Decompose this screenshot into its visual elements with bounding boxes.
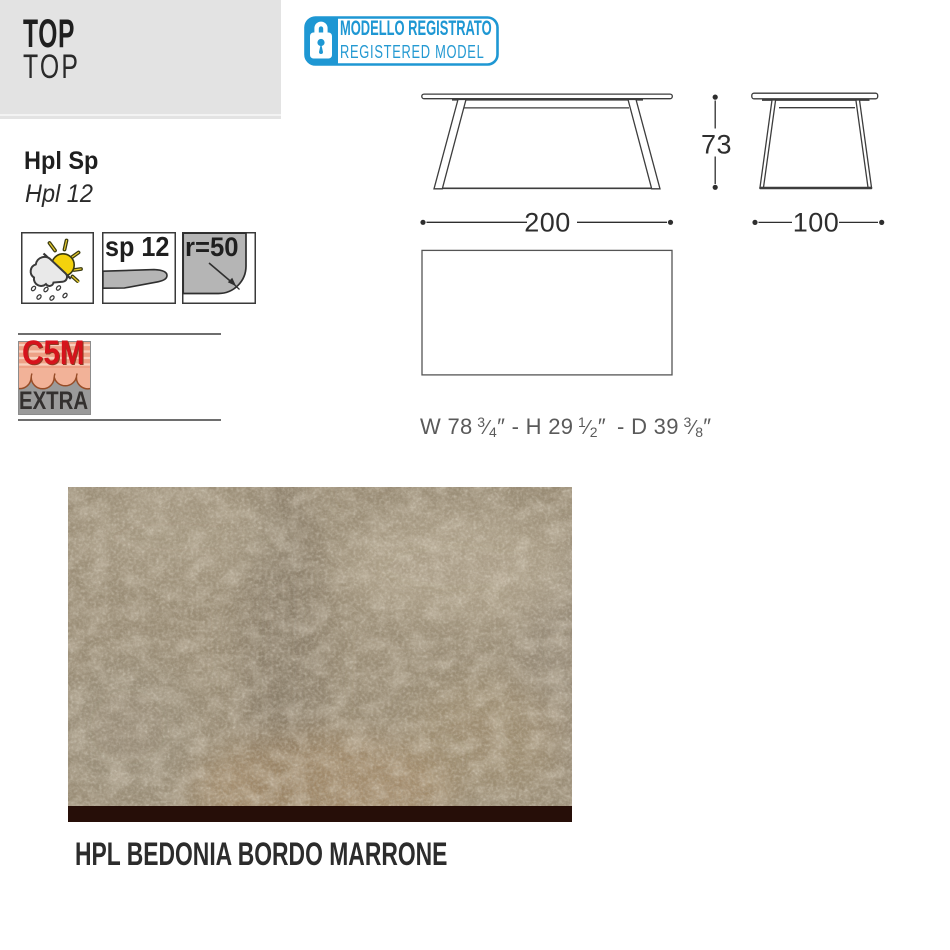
svg-text:100: 100	[793, 208, 840, 238]
svg-text:73: 73	[701, 130, 732, 160]
svg-text:200: 200	[524, 208, 571, 238]
